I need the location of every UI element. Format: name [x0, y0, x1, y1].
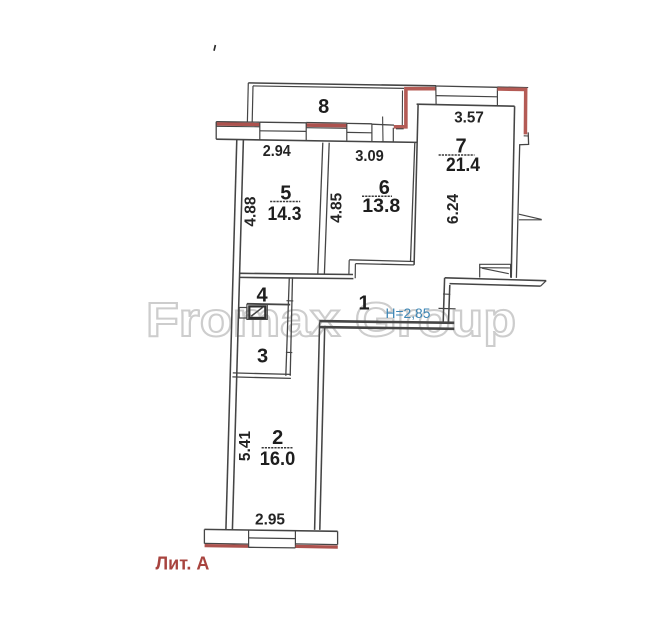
svg-text:3.09: 3.09	[355, 148, 384, 165]
svg-text:4: 4	[256, 285, 268, 307]
svg-text:2.95: 2.95	[255, 512, 285, 529]
svg-text:6.24: 6.24	[445, 194, 462, 225]
svg-text:2: 2	[272, 427, 283, 449]
svg-text:16.0: 16.0	[260, 449, 296, 470]
svg-text:13.8: 13.8	[362, 196, 400, 217]
svg-text:3.57: 3.57	[454, 109, 484, 126]
svg-text:H=2,85: H=2,85	[386, 306, 431, 321]
svg-text:5.41: 5.41	[237, 431, 254, 462]
svg-text:1: 1	[358, 292, 369, 314]
svg-text:2.94: 2.94	[263, 143, 291, 160]
svg-text:4.85: 4.85	[329, 192, 346, 223]
svg-text:3: 3	[257, 346, 268, 368]
svg-text:Лит. А: Лит. А	[156, 554, 210, 574]
svg-text:14.3: 14.3	[268, 204, 302, 225]
svg-text:8: 8	[318, 96, 329, 118]
svg-text:21.4: 21.4	[446, 155, 480, 176]
svg-text:4.88: 4.88	[242, 196, 259, 227]
